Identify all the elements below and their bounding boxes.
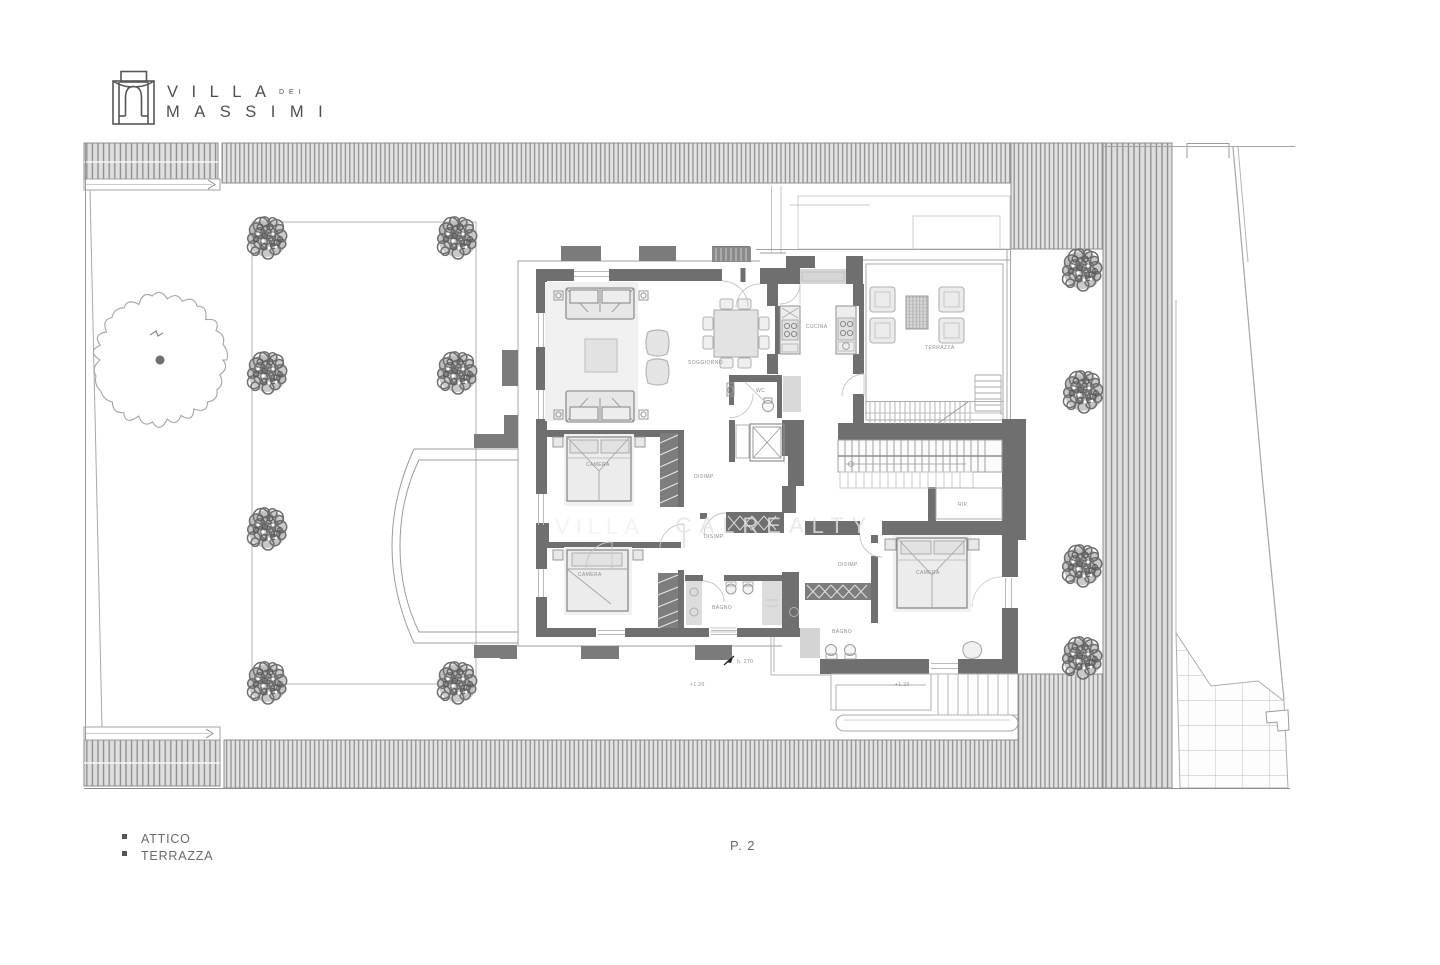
svg-text:h. 270: h. 270 (737, 659, 753, 665)
svg-text:SOGGIORNO: SOGGIORNO (688, 360, 723, 366)
svg-text:RIP.: RIP. (958, 502, 969, 508)
svg-text:+1.20: +1.20 (895, 682, 910, 688)
svg-text:WC: WC (756, 388, 765, 394)
svg-text:MASSIMI: MASSIMI (166, 103, 337, 121)
svg-text:VILLA: VILLA (555, 514, 645, 539)
svg-text:CAMERA: CAMERA (586, 462, 610, 468)
svg-text:ATTICO: ATTICO (141, 832, 191, 846)
svg-text:CAMERA: CAMERA (578, 572, 602, 578)
svg-text:TERRAZZA: TERRAZZA (141, 849, 213, 863)
svg-text:VILLA: VILLA (167, 83, 279, 101)
svg-text:CAMERA: CAMERA (916, 570, 940, 576)
svg-text:P. 2: P. 2 (730, 838, 755, 853)
svg-text:+1.20: +1.20 (690, 682, 705, 688)
svg-text:BAGNO: BAGNO (712, 605, 732, 611)
svg-text:DISIMP.: DISIMP. (838, 562, 859, 568)
svg-text:DISIMP.: DISIMP. (704, 534, 725, 540)
svg-text:TERRAZZA: TERRAZZA (925, 345, 955, 351)
svg-text:CUCINA: CUCINA (806, 324, 828, 330)
svg-text:BAGNO: BAGNO (832, 629, 852, 635)
svg-text:DISIMP.: DISIMP. (694, 474, 715, 480)
svg-text:DEI: DEI (279, 89, 306, 96)
